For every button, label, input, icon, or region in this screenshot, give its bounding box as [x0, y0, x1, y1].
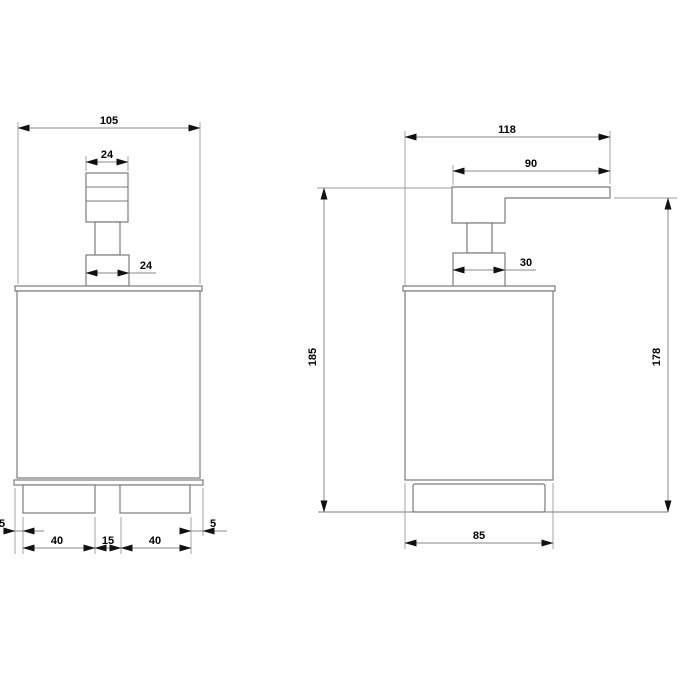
- dim-label-base-right-offset: 5: [210, 518, 216, 530]
- side-pump-stem: [467, 223, 492, 253]
- dim-front-base-right-width: 40: [121, 535, 191, 548]
- dim-side-overall-depth: 118: [405, 124, 610, 287]
- front-bracket-foot-right: [120, 485, 190, 513]
- side-pump-lever: [452, 187, 610, 223]
- side-bracket-foot: [413, 484, 545, 512]
- front-pump-head: [86, 173, 128, 222]
- dim-label-base-left-width: 40: [51, 535, 63, 547]
- front-pump-stem: [95, 222, 120, 255]
- dim-front-base-left-width: 40: [23, 535, 95, 548]
- front-body: [17, 291, 200, 478]
- dim-label-spout-length: 90: [525, 158, 537, 170]
- front-body-rim: [15, 286, 202, 291]
- dim-side-spout-underside-height: 178: [614, 198, 677, 512]
- side-body: [405, 291, 553, 480]
- dim-front-base-right-offset: 5: [183, 518, 227, 531]
- dim-label-overall-depth: 118: [498, 124, 516, 136]
- dim-front-base-gap: 15: [95, 535, 121, 548]
- dim-label-overall-width: 105: [100, 115, 118, 127]
- front-pump-collar: [86, 255, 129, 286]
- technical-drawing-canvas: 105 24 24 5 4: [0, 0, 700, 700]
- dim-label-pump-head-width: 24: [101, 149, 114, 161]
- side-body-rim: [403, 286, 555, 291]
- dim-front-base-left-offset: 5: [0, 518, 44, 531]
- dim-label-spout-underside-height: 178: [651, 348, 663, 366]
- side-view: 118 90 30 185 178: [307, 124, 677, 549]
- dim-side-spout-length: 90: [453, 158, 610, 185]
- dim-label-base-right-width: 40: [149, 535, 161, 547]
- drawing-svg: 105 24 24 5 4: [0, 0, 700, 700]
- dim-label-pump-collar-depth: 30: [520, 257, 532, 269]
- dim-label-base-depth: 85: [473, 530, 485, 542]
- front-bracket-foot-left: [23, 485, 95, 513]
- dim-front-pump-head-width: 24: [86, 149, 128, 171]
- front-view: 105 24 24 5 4: [0, 115, 227, 554]
- dim-label-base-gap: 15: [102, 535, 114, 547]
- dim-label-overall-height: 185: [307, 348, 319, 366]
- dim-label-base-left-offset: 5: [0, 518, 5, 530]
- front-bracket-plate: [14, 480, 203, 485]
- dim-label-pump-collar-width: 24: [140, 260, 153, 272]
